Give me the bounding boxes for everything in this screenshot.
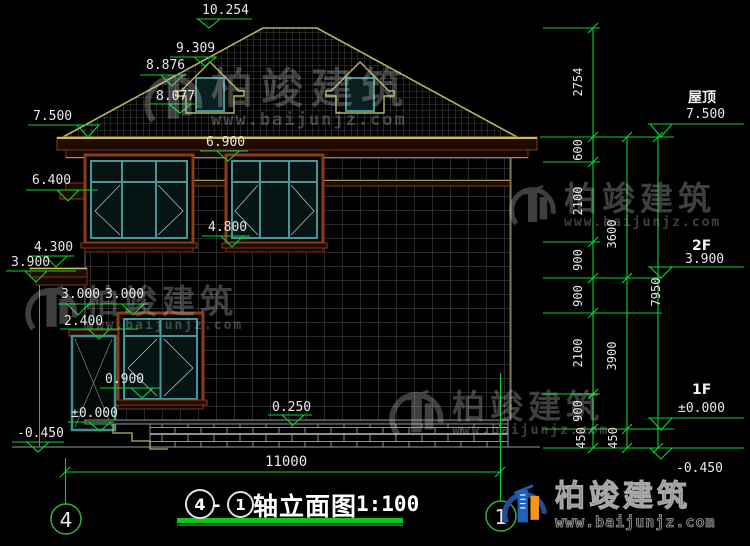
floor-level: ±0.000 — [678, 402, 725, 415]
level-value: 10.254 — [202, 4, 249, 17]
level-value: 4.800 — [208, 221, 247, 234]
watermark-company: 柏竣建筑 — [211, 68, 411, 110]
chain-dim: 2100 — [572, 187, 584, 216]
window-2f-middle — [222, 155, 327, 252]
brand-company: 柏竣建筑 — [555, 479, 691, 514]
floor-level: 3.900 — [685, 253, 724, 266]
title-axis-circle-4: 4 — [185, 489, 215, 519]
axis-number-4: 4 — [60, 508, 73, 532]
title-axis-to: 1 — [235, 496, 245, 514]
level-value: 8.077 — [156, 90, 195, 103]
chain-dim: 600 — [572, 139, 584, 161]
overall-dimension: 11000 — [265, 455, 307, 469]
floor-label: 2F — [692, 239, 711, 253]
level-value: 0.900 — [105, 373, 144, 386]
level-value: 8.876 — [146, 59, 185, 72]
floor-label: 屋顶 — [688, 91, 716, 105]
cad-elevation-screenshot: 柏竣建筑 www.baijunjz.com 柏竣建筑 www.baijunjz.… — [0, 0, 750, 546]
watermark-website: www.baijunjz.com — [86, 318, 243, 334]
level-value: 6.400 — [32, 174, 71, 187]
watermark-website: www.baijunjz.com — [211, 110, 411, 131]
brand-logo-icon — [498, 470, 551, 544]
brand-logo: 柏竣建筑 www.baijunjz.com — [498, 470, 750, 544]
level-value: 0.250 — [272, 401, 311, 414]
chain-dim: 3900 — [606, 342, 618, 371]
level-value: 6.900 — [206, 136, 245, 149]
chain-dim: 2100 — [572, 339, 584, 368]
level-value: 3.000 — [61, 288, 100, 301]
level-value: 9.309 — [176, 42, 215, 55]
watermark-website: www.baijunjz.com — [564, 215, 721, 231]
level-value: 3.000 — [105, 288, 144, 301]
chain-dim: 900 — [572, 285, 584, 307]
chain-dim: 900 — [572, 400, 584, 422]
drawing-scale: 1:100 — [356, 492, 419, 516]
title-axis-circle-1: 1 — [227, 491, 254, 518]
floor-label: 1F — [692, 383, 711, 397]
chain-dim: 450 — [607, 427, 619, 449]
chain-dim: 7950 — [650, 278, 662, 307]
title-axis-from: 4 — [194, 495, 205, 514]
window-2f-left — [81, 155, 197, 252]
level-value: -0.450 — [17, 427, 64, 440]
watermark-logo-icon — [388, 386, 446, 444]
chain-dim: 2754 — [572, 68, 584, 97]
chain-dim: 3600 — [606, 220, 618, 249]
level-value: 2.400 — [64, 315, 103, 328]
level-value: ±0.000 — [71, 407, 118, 420]
level-value: 4.300 — [34, 241, 73, 254]
floor-level: 7.500 — [686, 108, 725, 121]
title-separator: - — [213, 495, 220, 516]
watermark-company: 柏竣建筑 — [452, 390, 609, 423]
drawing-title: 轴立面图 — [253, 487, 357, 523]
brand-website: www.baijunjz.com — [555, 513, 716, 531]
level-value: 7.500 — [33, 110, 72, 123]
watermark-logo-icon — [508, 182, 558, 232]
watermark-company: 柏竣建筑 — [564, 182, 721, 215]
chain-dim: 450 — [575, 427, 587, 449]
chain-dim: 900 — [572, 249, 584, 271]
level-value: 3.900 — [11, 256, 50, 269]
